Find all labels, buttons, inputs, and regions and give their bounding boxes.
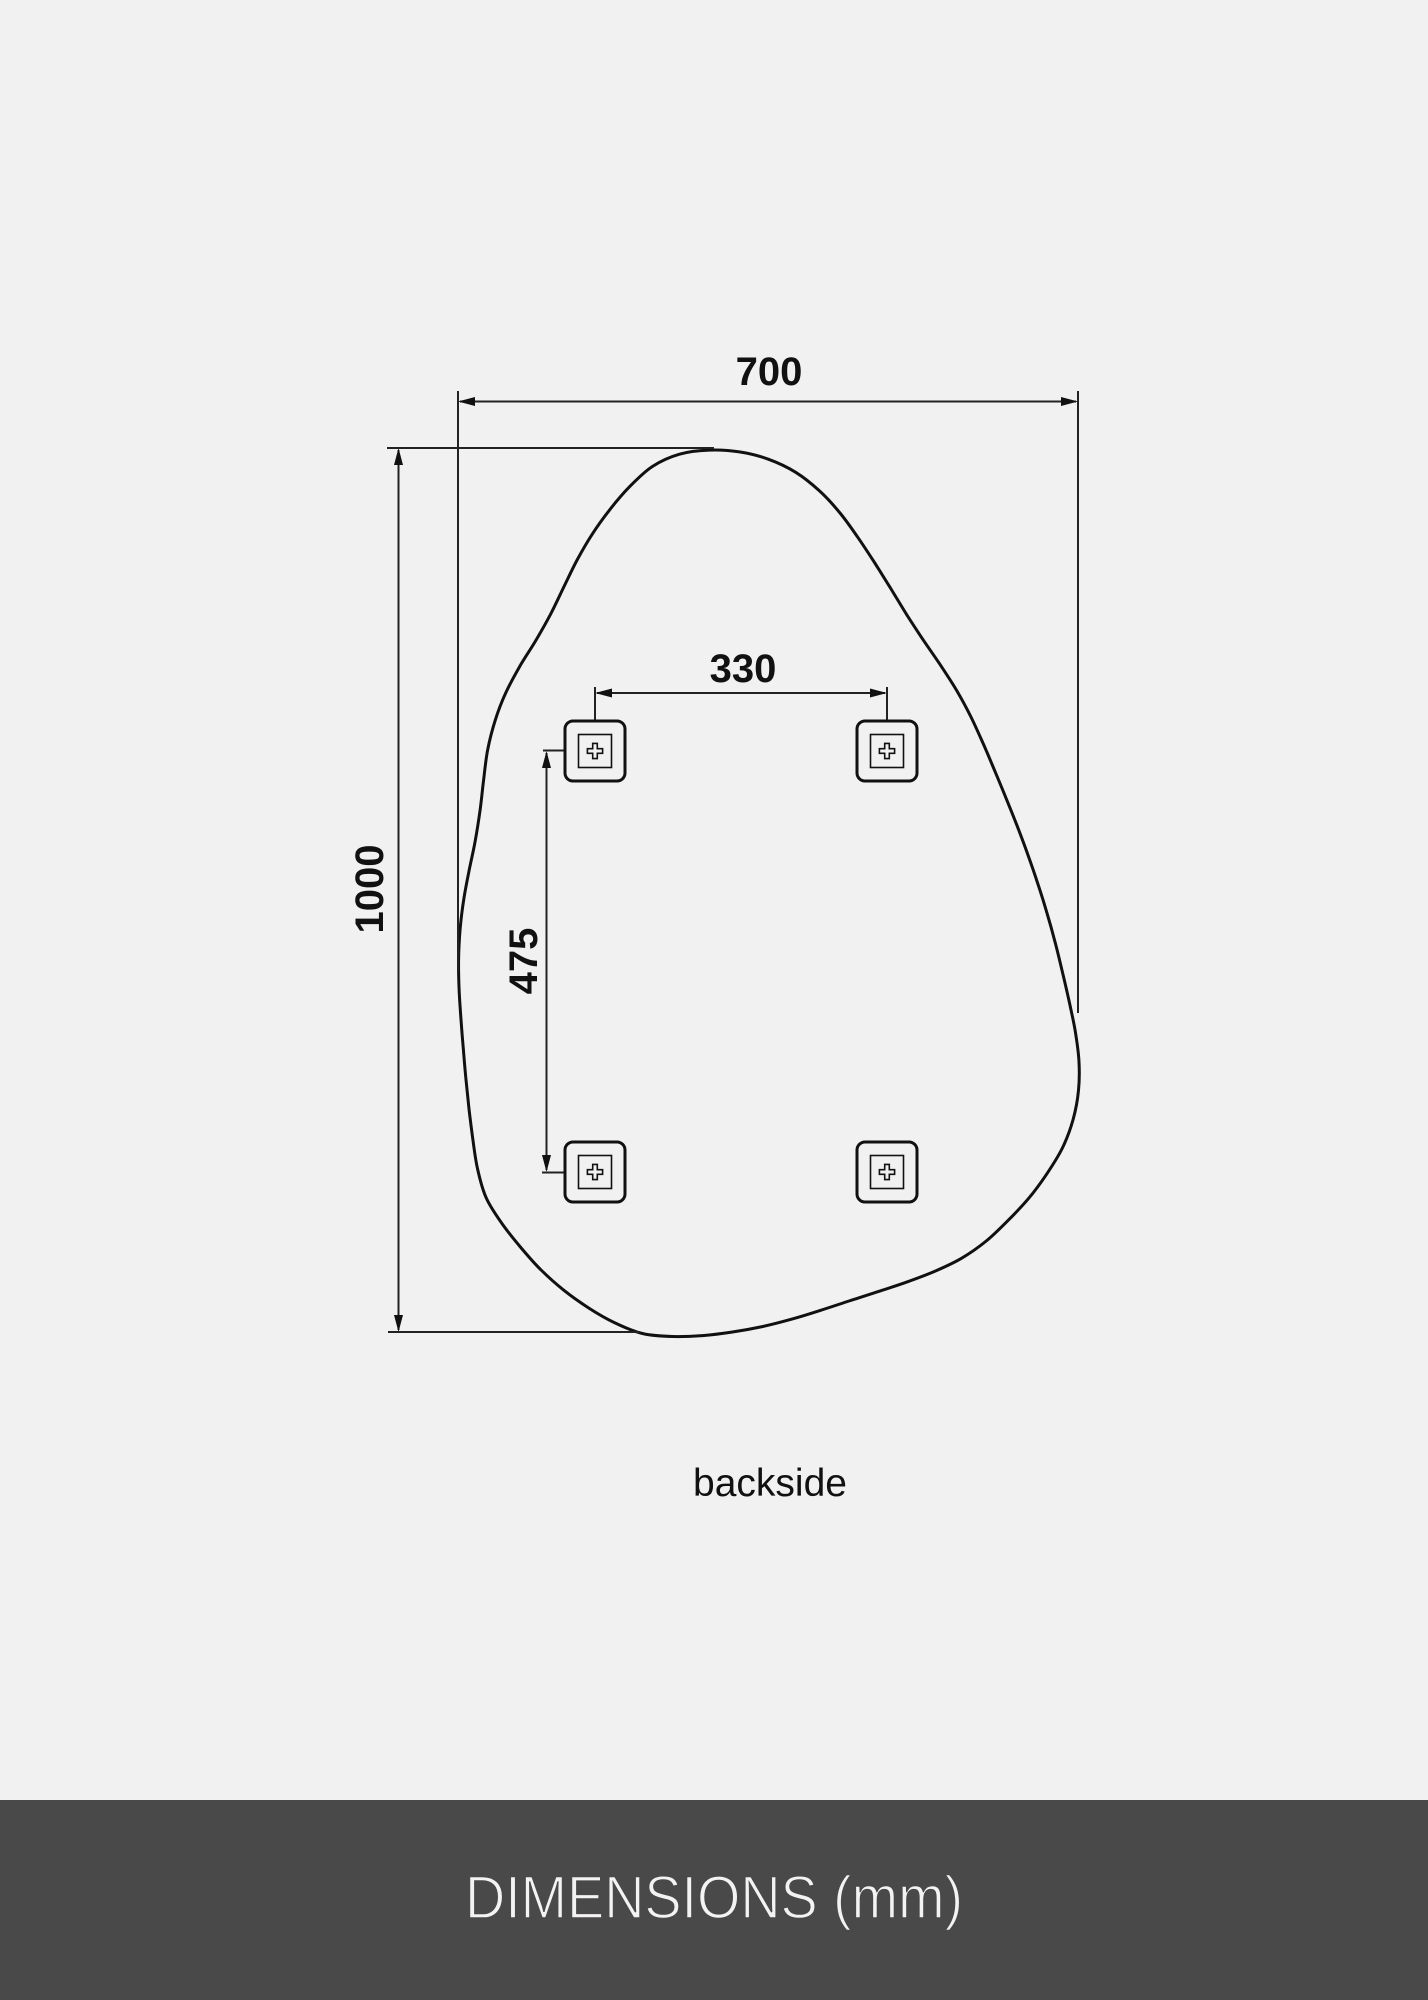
svg-text:DIMENSIONS (mm): DIMENSIONS (mm) bbox=[465, 1864, 963, 1931]
svg-text:backside: backside bbox=[693, 1462, 847, 1505]
svg-text:330: 330 bbox=[710, 647, 777, 691]
svg-text:700: 700 bbox=[736, 350, 803, 394]
svg-text:1000: 1000 bbox=[348, 845, 392, 934]
svg-text:475: 475 bbox=[502, 928, 546, 995]
